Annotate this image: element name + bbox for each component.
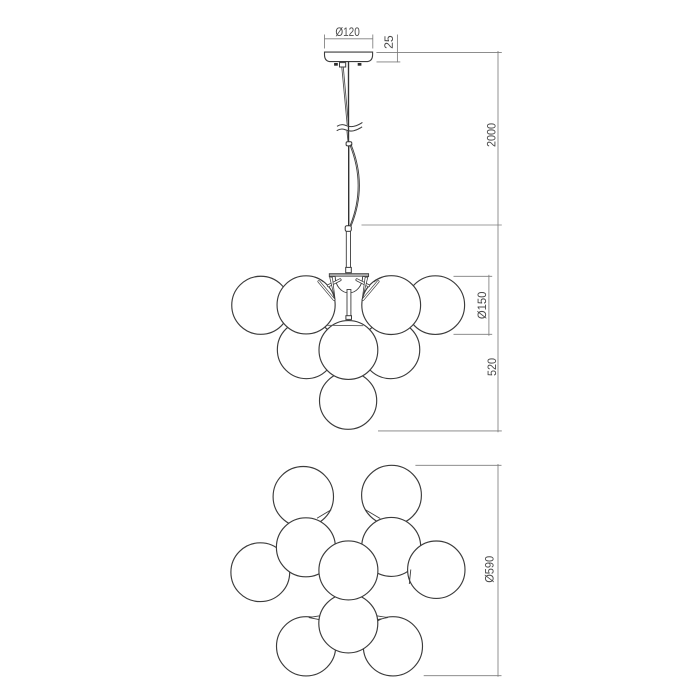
- svg-text:520: 520: [485, 358, 499, 376]
- svg-text:Ø150: Ø150: [475, 291, 489, 319]
- svg-text:Ø120: Ø120: [335, 25, 360, 39]
- svg-text:Ø590: Ø590: [483, 556, 497, 583]
- svg-text:25: 25: [382, 35, 396, 49]
- svg-text:2000: 2000: [484, 123, 498, 147]
